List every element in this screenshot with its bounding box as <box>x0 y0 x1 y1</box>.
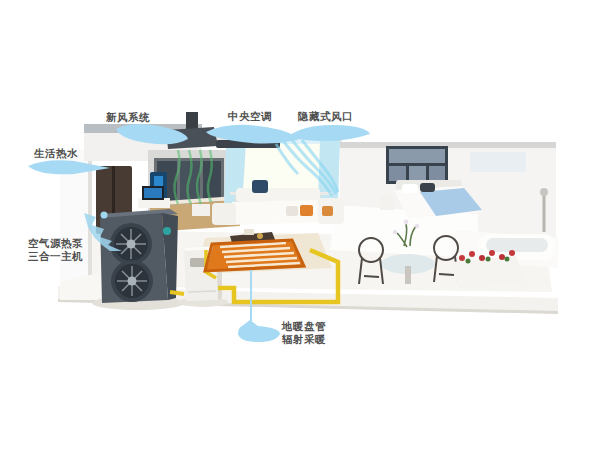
floor-heating-pointer-blob <box>236 318 282 344</box>
fan-bottom-cap <box>128 277 137 286</box>
callout-hot-water: 生活热水 <box>34 147 78 160</box>
heat-pump-label-line2: 三合一主机 <box>28 250 83 263</box>
bedroom-window-pane3 <box>429 166 445 181</box>
bedroom-window-pane2 <box>409 166 426 181</box>
hot-water-label: 生活热水 <box>34 147 78 160</box>
pillow-bed1 <box>402 184 418 193</box>
fan-top-cap <box>127 240 136 249</box>
heat-pump-home-infographic: 新风系统 生活热水 中央空调 隐藏式风口 空气源热泵 三合一主机 地暖盘管 辐射… <box>0 0 600 450</box>
bedroom-window-pane1 <box>389 166 406 181</box>
tv-screen <box>144 188 162 198</box>
heat-pump-label-line1: 空气源热泵 <box>28 237 83 250</box>
floor-heating-label-line1: 地暖盘管 <box>282 320 326 333</box>
air-outlet-pointer-blob <box>286 120 372 144</box>
fresh-air-label: 新风系统 <box>106 111 150 124</box>
plant-bloom3 <box>393 230 397 234</box>
plant-bloom <box>404 220 409 225</box>
nightstand <box>380 196 394 210</box>
armchair-left <box>212 203 236 225</box>
hydro-grill <box>190 258 206 267</box>
bedroom-window-top <box>389 149 445 163</box>
heat-pump-pointer-arrow <box>80 211 124 253</box>
air-outlet-label: 隐藏式风口 <box>298 110 353 123</box>
callout-fresh-air: 新风系统 <box>106 111 150 124</box>
floor-heating-zone <box>205 239 304 271</box>
callout-floor-heating: 地暖盘管 辐射采暖 <box>282 320 326 346</box>
central-ac-label: 中央空调 <box>228 110 272 123</box>
callout-central-ac: 中央空调 <box>228 110 272 123</box>
floor-heating-label-line2: 辐射采暖 <box>282 333 326 346</box>
pipe-unit-link <box>170 292 184 294</box>
plant-bloom2 <box>415 224 419 228</box>
pillow-orange2 <box>322 206 333 216</box>
kitchen-appliance <box>192 204 210 216</box>
brand-badge <box>163 227 171 235</box>
pillow-navy <box>252 180 268 193</box>
table-stem <box>405 266 411 284</box>
callout-air-outlet: 隐藏式风口 <box>298 110 353 123</box>
fresh-air-pointer-blob <box>114 121 190 147</box>
right-window <box>470 152 526 172</box>
pillow-bed2 <box>420 183 435 192</box>
table-bowl <box>257 233 263 239</box>
pillow-white <box>286 206 298 216</box>
bathtub-inner <box>486 238 548 252</box>
pillow-orange <box>300 205 313 216</box>
table-decor <box>244 229 254 235</box>
callout-heat-pump: 空气源热泵 三合一主机 <box>28 237 83 263</box>
hydro-seam <box>188 291 216 292</box>
shower-head <box>540 188 548 196</box>
sofa-back <box>236 188 320 202</box>
floor-heating-leader-line <box>250 270 252 322</box>
